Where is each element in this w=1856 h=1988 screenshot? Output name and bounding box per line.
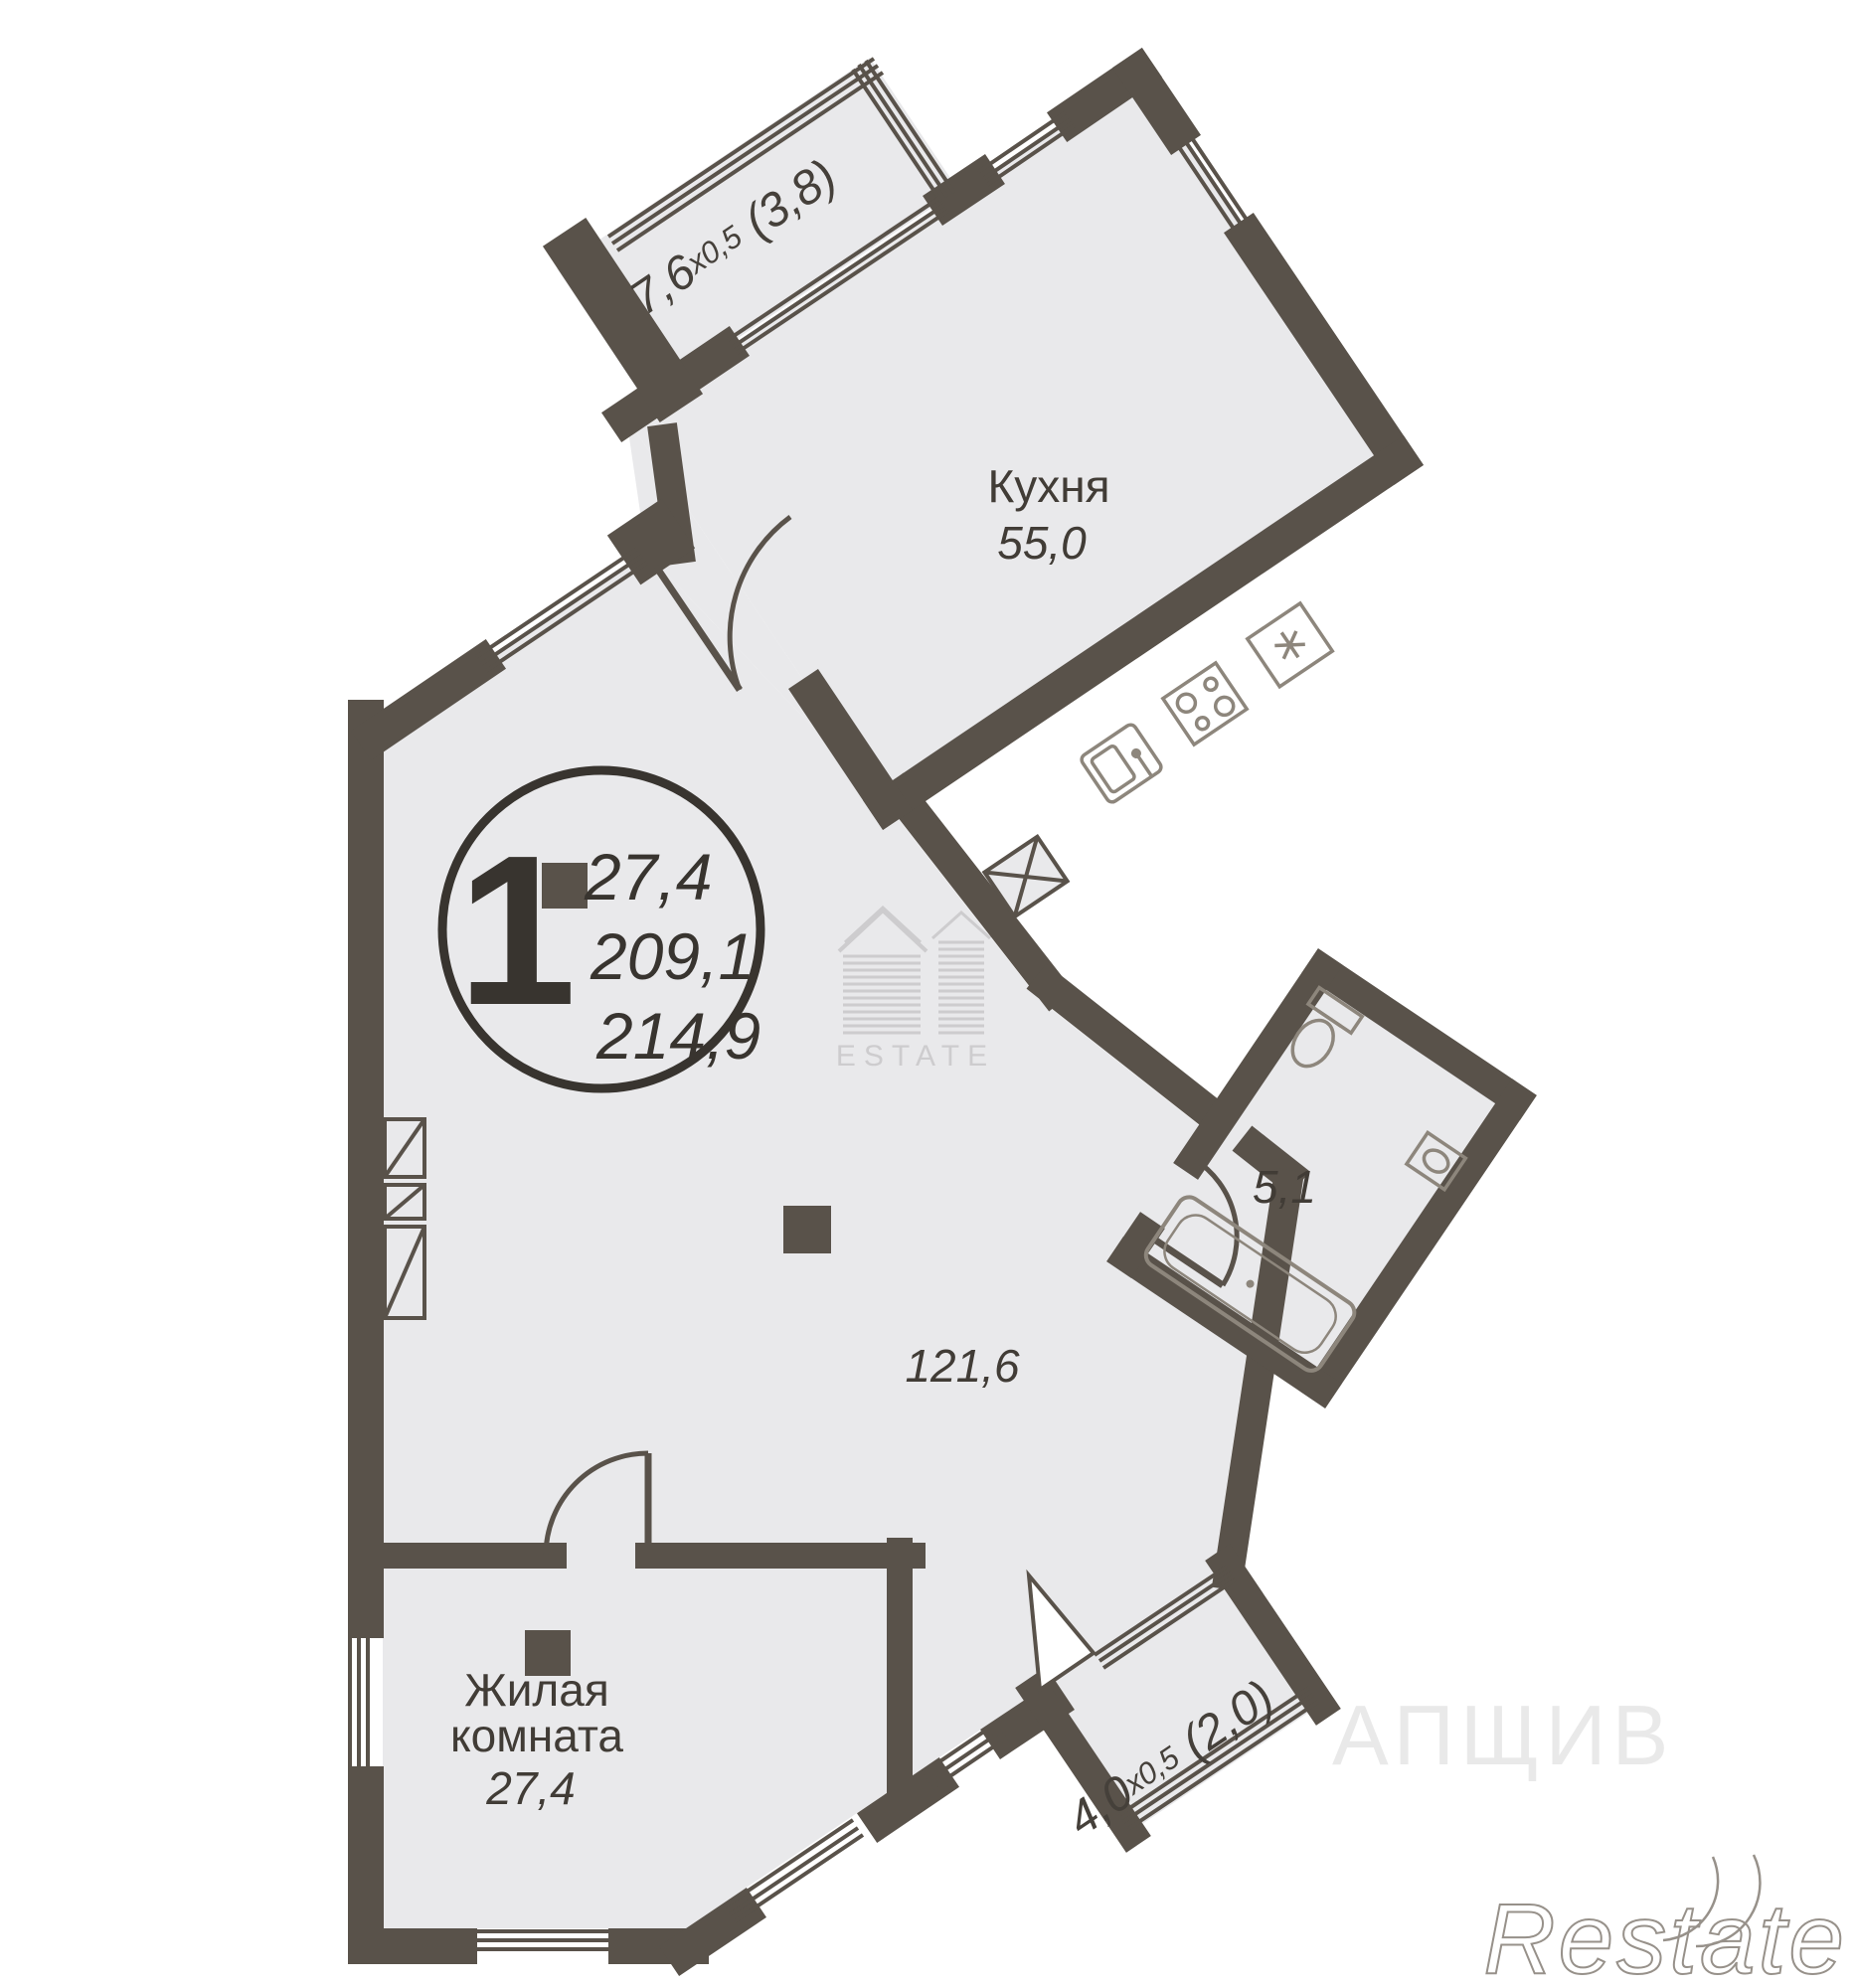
unit-total-area: 214,9	[595, 999, 760, 1073]
floor-plan-page: ESTATE	[0, 0, 1856, 1988]
kitchen-area: 55,0	[997, 517, 1087, 569]
faint-watermark: АПЩИВ	[1332, 1689, 1674, 1783]
living-room-area: 27,4	[485, 1762, 576, 1814]
vent-shaft-icon	[385, 1119, 424, 1318]
restate-watermark-text: Restate	[1483, 1884, 1847, 1988]
living-room-label-line1: Жилая	[464, 1664, 609, 1716]
estate-watermark-text: ESTATE	[836, 1040, 995, 1073]
living-room-label-line2: комната	[450, 1710, 623, 1761]
sink-icon	[1080, 723, 1163, 804]
fridge-icon	[1248, 603, 1332, 687]
living-bottom-window	[459, 1931, 626, 1949]
column-icon	[783, 1206, 831, 1253]
restate-watermark: Restate	[1483, 1855, 1847, 1988]
unit-rooms-count: 1	[457, 810, 577, 1050]
floor-plan-svg: ESTATE	[0, 0, 1856, 1988]
stove-icon	[1163, 663, 1247, 745]
unit-living-area: 209,1	[590, 919, 755, 993]
bathroom-area: 5,1	[1253, 1161, 1316, 1213]
unit-room-area: 27,4	[584, 840, 712, 913]
living-left-window	[350, 1620, 368, 1784]
main-room-area: 121,6	[905, 1340, 1020, 1392]
wall-bath-left-a	[1127, 1233, 1144, 1257]
kitchen-label: Кухня	[987, 460, 1109, 512]
